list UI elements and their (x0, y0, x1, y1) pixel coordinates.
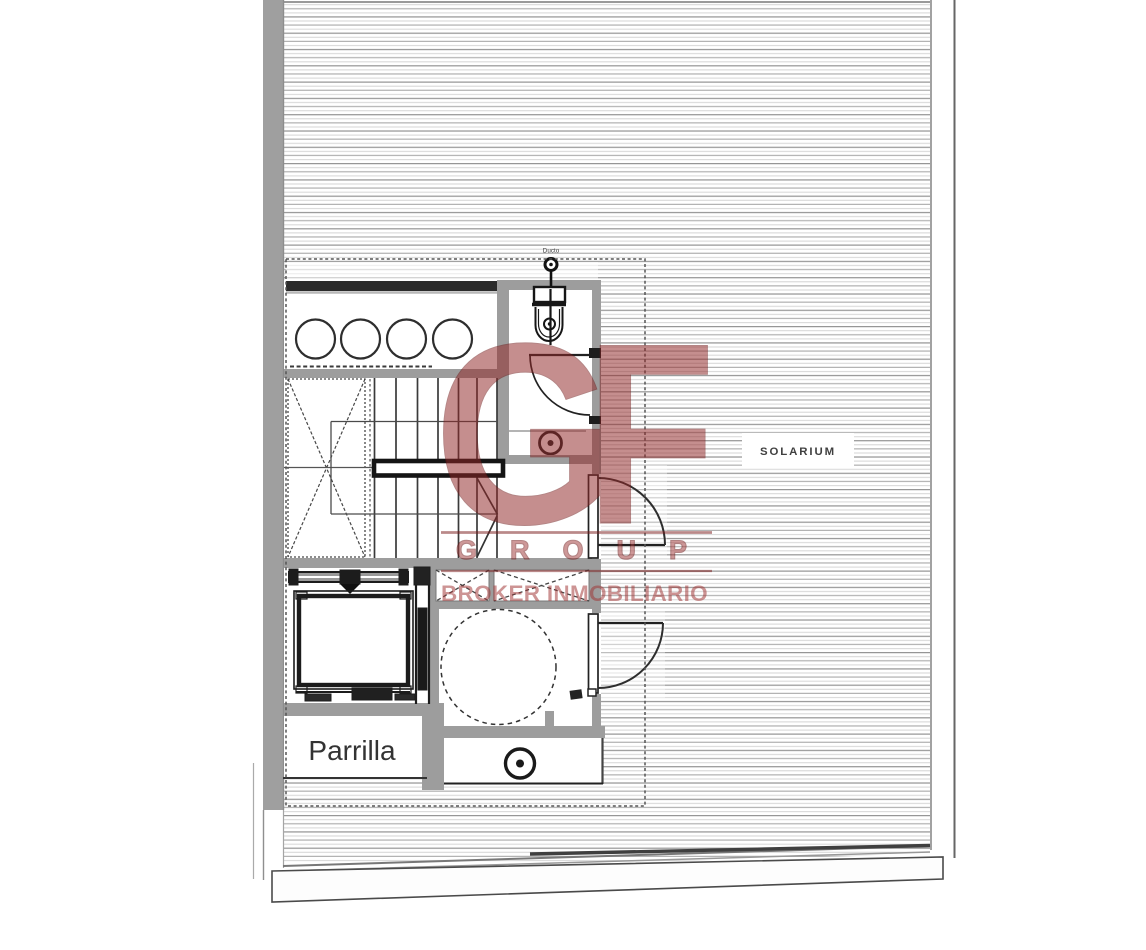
svg-text:Parrilla: Parrilla (308, 735, 396, 766)
svg-text:GROUP: GROUP (456, 535, 720, 565)
svg-text:Ducto: Ducto (543, 248, 560, 255)
svg-text:BROKER INMOBILIARIO: BROKER INMOBILIARIO (441, 581, 708, 606)
svg-text:SOLARIUM: SOLARIUM (760, 446, 836, 458)
